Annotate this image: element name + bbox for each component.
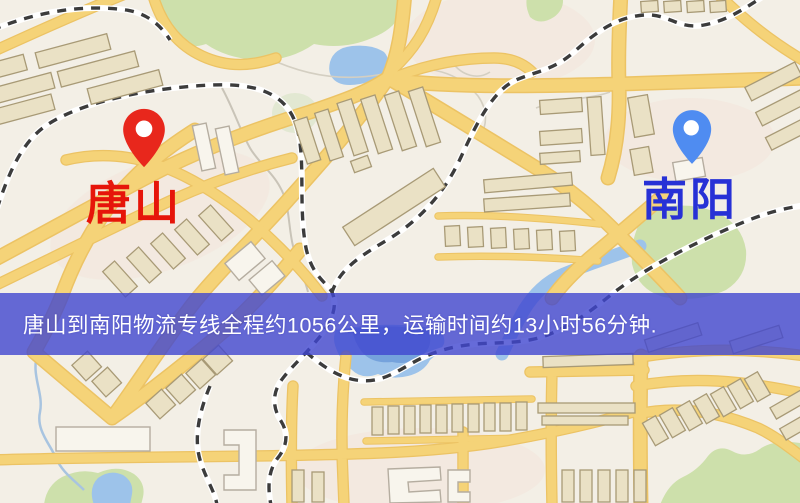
route-info-banner: 唐山到南阳物流专线全程约1056公里，运输时间约13小时56分钟. [0, 293, 800, 355]
banner-text: 唐山到南阳物流专线全程约1056公里，运输时间约13小时56分钟. [23, 309, 657, 340]
map-canvas [0, 0, 800, 503]
destination-city-label: 南阳 [642, 177, 738, 222]
map-view[interactable]: 唐山到南阳物流专线全程约1056公里，运输时间约13小时56分钟. 唐山 南阳 [0, 0, 800, 503]
destination-pin-icon[interactable] [669, 107, 715, 167]
origin-city-label: 唐山 [86, 181, 182, 226]
origin-pin-icon[interactable] [119, 105, 169, 171]
